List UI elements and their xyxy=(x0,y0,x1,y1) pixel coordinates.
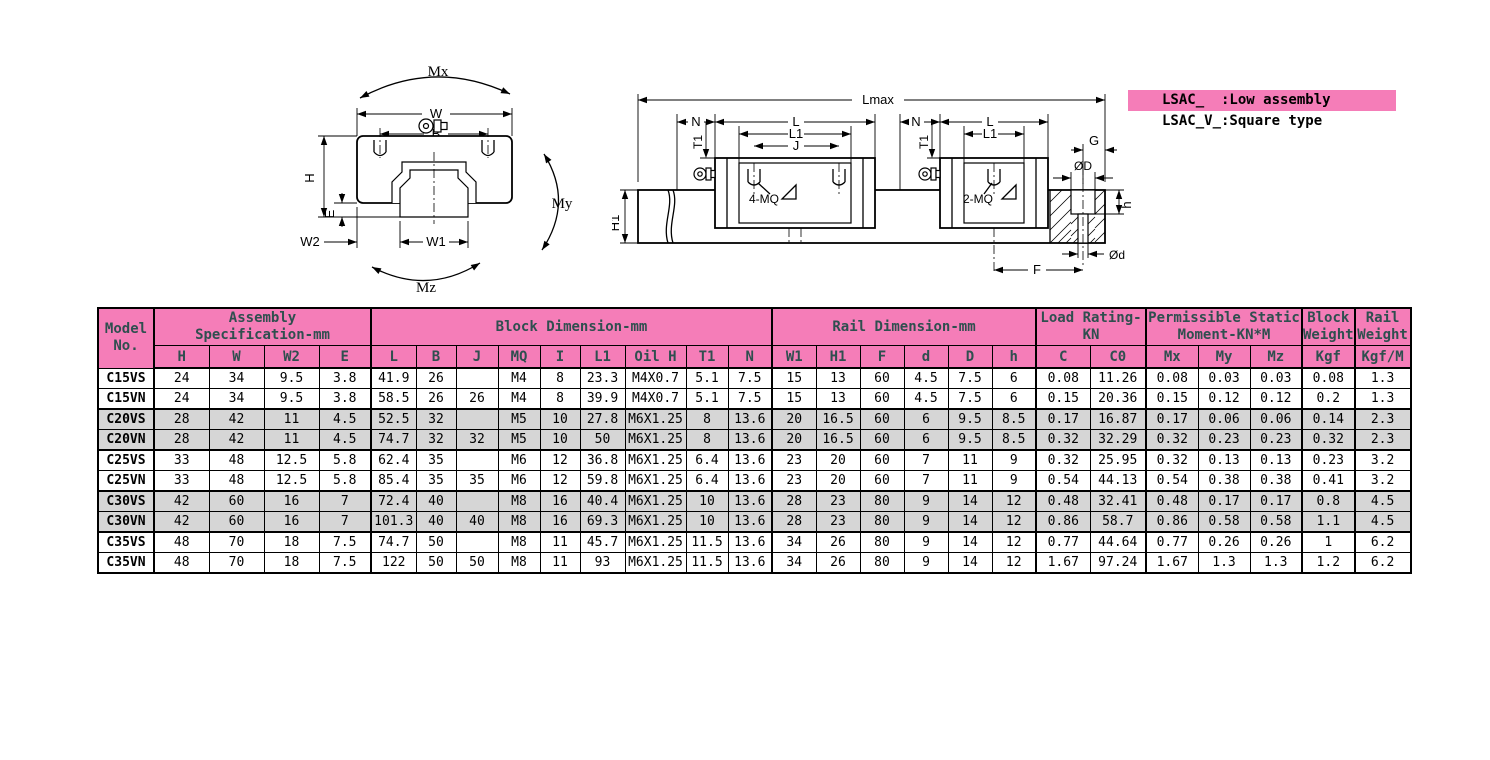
data-cell: 7.5 xyxy=(728,389,772,410)
data-cell: 52.5 xyxy=(371,409,416,430)
data-cell: 20.36 xyxy=(1090,389,1146,410)
col-header: D xyxy=(948,346,992,369)
data-cell: 8 xyxy=(540,368,580,389)
data-cell: 60 xyxy=(860,368,904,389)
data-cell: M4X0.7 xyxy=(625,368,686,389)
data-cell: 24 xyxy=(154,368,209,389)
data-cell: 12 xyxy=(992,553,1036,574)
data-cell: 10 xyxy=(540,409,580,430)
data-cell: 20 xyxy=(816,450,860,471)
data-cell: 9.5 xyxy=(264,389,319,410)
data-cell: 26 xyxy=(816,553,860,574)
spec-table: ModelNo. AssemblySpecification-mm Block … xyxy=(97,307,1412,574)
data-cell: 5.8 xyxy=(319,450,371,471)
model-cell: C15VN xyxy=(98,389,154,410)
data-cell: 13.6 xyxy=(728,471,772,492)
data-cell: M6X1.25 xyxy=(625,553,686,574)
data-cell: 6.4 xyxy=(686,471,728,492)
data-cell: 0.15 xyxy=(1036,389,1090,410)
mz-label: Mz xyxy=(416,280,436,296)
data-cell: 4.5 xyxy=(904,389,948,410)
data-cell: 0.12 xyxy=(1198,389,1250,410)
block-cross-section-drawing: Mx W B H E W2 W1 xyxy=(272,52,592,302)
data-cell: 0.58 xyxy=(1250,512,1302,533)
data-cell: 0.23 xyxy=(1250,430,1302,451)
data-cell: 2.3 xyxy=(1355,430,1411,451)
data-cell: 15 xyxy=(772,368,816,389)
data-cell: 0.48 xyxy=(1146,491,1198,512)
col-header: L xyxy=(371,346,416,369)
col-header: C0 xyxy=(1090,346,1146,369)
data-cell: 28 xyxy=(154,409,209,430)
data-cell: 20 xyxy=(772,409,816,430)
data-cell: 23 xyxy=(816,512,860,533)
data-cell: 9 xyxy=(992,471,1036,492)
data-cell: 28 xyxy=(154,430,209,451)
data-cell: 35 xyxy=(456,471,498,492)
my-label: My xyxy=(552,196,573,212)
data-cell: M6X1.25 xyxy=(625,430,686,451)
data-cell: 5.1 xyxy=(686,389,728,410)
data-cell: 60 xyxy=(860,471,904,492)
data-cell: 8.5 xyxy=(992,430,1036,451)
data-cell: 0.17 xyxy=(1250,491,1302,512)
data-cell: 5.8 xyxy=(319,471,371,492)
data-cell: 13.6 xyxy=(728,532,772,553)
mq4-label: 4-MQ xyxy=(749,192,779,206)
data-cell: 16 xyxy=(264,512,319,533)
data-cell: 6 xyxy=(904,409,948,430)
data-cell: 2.3 xyxy=(1355,409,1411,430)
data-cell: 1.2 xyxy=(1302,553,1355,574)
data-cell xyxy=(456,491,498,512)
data-cell: 15 xyxy=(772,389,816,410)
data-cell: 7 xyxy=(904,471,948,492)
data-cell: 0.06 xyxy=(1250,409,1302,430)
data-cell: 6 xyxy=(992,368,1036,389)
data-cell: 9 xyxy=(992,450,1036,471)
data-cell: 12 xyxy=(992,491,1036,512)
data-cell: 60 xyxy=(860,450,904,471)
data-cell: 74.7 xyxy=(371,532,416,553)
mx-label: Mx xyxy=(428,64,449,80)
data-cell: 0.32 xyxy=(1036,430,1090,451)
lmax-label: Lmax xyxy=(862,92,894,107)
data-cell: 60 xyxy=(860,409,904,430)
data-cell: 0.14 xyxy=(1302,409,1355,430)
data-cell: 10 xyxy=(540,430,580,451)
data-cell: 1.67 xyxy=(1146,553,1198,574)
data-cell: 11 xyxy=(264,430,319,451)
data-cell: 7 xyxy=(319,512,371,533)
data-cell: M6 xyxy=(498,450,540,471)
data-cell: M5 xyxy=(498,409,540,430)
group-static-moment: Permissible StaticMoment-KN*M xyxy=(1146,308,1302,346)
data-cell: 0.08 xyxy=(1036,368,1090,389)
data-cell: 1.3 xyxy=(1250,553,1302,574)
datasheet-page: Mx W B H E W2 W1 xyxy=(0,0,1490,760)
g-label: G xyxy=(1089,133,1099,148)
mq2-label: 2-MQ xyxy=(963,192,993,206)
data-cell: 40.4 xyxy=(580,491,625,512)
data-cell: M4 xyxy=(498,389,540,410)
data-cell: M6X1.25 xyxy=(625,471,686,492)
data-cell: 8 xyxy=(686,409,728,430)
data-cell: 0.03 xyxy=(1198,368,1250,389)
data-cell: 70 xyxy=(209,532,264,553)
data-cell: 7.5 xyxy=(948,389,992,410)
data-cell: 34 xyxy=(209,368,264,389)
data-cell: 59.8 xyxy=(580,471,625,492)
group-assembly: AssemblySpecification-mm xyxy=(154,308,371,346)
data-cell: 16.87 xyxy=(1090,409,1146,430)
data-cell: 1.1 xyxy=(1302,512,1355,533)
data-cell: 0.13 xyxy=(1250,450,1302,471)
data-cell: 72.4 xyxy=(371,491,416,512)
data-cell: 0.13 xyxy=(1198,450,1250,471)
data-cell: 122 xyxy=(371,553,416,574)
data-cell: 12 xyxy=(540,450,580,471)
data-cell: 6.2 xyxy=(1355,532,1411,553)
data-cell: 34 xyxy=(772,532,816,553)
col-header: C xyxy=(1036,346,1090,369)
model-cell: C35VS xyxy=(98,532,154,553)
data-cell: M6X1.25 xyxy=(625,532,686,553)
model-cell: C25VN xyxy=(98,471,154,492)
h-label: H xyxy=(302,173,317,182)
data-cell: 11.5 xyxy=(686,532,728,553)
dia-d-label: Ød xyxy=(1109,248,1125,262)
data-cell: M6X1.25 xyxy=(625,491,686,512)
data-cell: 7.5 xyxy=(948,368,992,389)
data-cell: 58.7 xyxy=(1090,512,1146,533)
data-cell: 35 xyxy=(416,450,456,471)
data-cell: 74.7 xyxy=(371,430,416,451)
data-cell: 33 xyxy=(154,450,209,471)
data-cell: 27.8 xyxy=(580,409,625,430)
table-row: C30VS426016772.440M81640.4M6X1.251013.62… xyxy=(98,491,1411,512)
col-header: Kgf xyxy=(1302,346,1355,369)
data-cell: 4.5 xyxy=(319,430,371,451)
model-cell: C25VS xyxy=(98,450,154,471)
f-label: F xyxy=(1033,262,1041,277)
data-cell: 41.9 xyxy=(371,368,416,389)
w2-label: W2 xyxy=(300,234,320,249)
sub-header-row: H W W2 E L B J MQ I L1 Oil H T1 N W1 H1 … xyxy=(98,346,1411,369)
data-cell: 12 xyxy=(992,512,1036,533)
data-cell: 4.5 xyxy=(1355,491,1411,512)
table-row: C20VN2842114.574.73232M51050M6X1.25813.6… xyxy=(98,430,1411,451)
data-cell: 13.6 xyxy=(728,491,772,512)
data-cell: 42 xyxy=(154,491,209,512)
data-cell: 80 xyxy=(860,491,904,512)
h-dim-label: h xyxy=(1119,201,1134,208)
data-cell: 23 xyxy=(816,491,860,512)
data-cell: 3.2 xyxy=(1355,471,1411,492)
data-cell: 40 xyxy=(416,491,456,512)
data-cell: 13.6 xyxy=(728,450,772,471)
table-row: C35VN4870187.51225050M81193M6X1.2511.513… xyxy=(98,553,1411,574)
data-cell: 1.3 xyxy=(1355,368,1411,389)
col-header: B xyxy=(416,346,456,369)
data-cell: 0.17 xyxy=(1198,491,1250,512)
data-cell: 33 xyxy=(154,471,209,492)
data-cell: 101.3 xyxy=(371,512,416,533)
data-cell: 34 xyxy=(772,553,816,574)
data-cell: 16 xyxy=(540,512,580,533)
data-cell: 0.38 xyxy=(1198,471,1250,492)
model-cell: C20VN xyxy=(98,430,154,451)
data-cell: 0.48 xyxy=(1036,491,1090,512)
data-cell: 9 xyxy=(904,491,948,512)
col-header: W xyxy=(209,346,264,369)
data-cell: 40 xyxy=(456,512,498,533)
data-cell: 34 xyxy=(209,389,264,410)
table-row: C20VS2842114.552.532M51027.8M6X1.25813.6… xyxy=(98,409,1411,430)
t1-left-label: T1 xyxy=(691,135,705,149)
table-row: C25VS334812.55.862.435M61236.8M6X1.256.4… xyxy=(98,450,1411,471)
col-header: Kgf/M xyxy=(1355,346,1411,369)
data-cell: M6X1.25 xyxy=(625,450,686,471)
data-cell: 16.5 xyxy=(816,430,860,451)
data-cell: 69.3 xyxy=(580,512,625,533)
data-cell: 0.77 xyxy=(1146,532,1198,553)
data-cell: 26 xyxy=(456,389,498,410)
data-cell: 42 xyxy=(209,430,264,451)
data-cell: 0.8 xyxy=(1302,491,1355,512)
col-header: My xyxy=(1198,346,1250,369)
h1-label: H1 xyxy=(612,215,622,232)
data-cell: 48 xyxy=(154,553,209,574)
data-cell: 0.77 xyxy=(1036,532,1090,553)
data-cell: 0.32 xyxy=(1036,450,1090,471)
data-cell: 23.3 xyxy=(580,368,625,389)
model-cell: C30VS xyxy=(98,491,154,512)
data-cell: 12 xyxy=(540,471,580,492)
data-cell: 32 xyxy=(416,409,456,430)
data-cell: 62.4 xyxy=(371,450,416,471)
data-cell: 13 xyxy=(816,389,860,410)
data-cell: 28 xyxy=(772,491,816,512)
col-header: I xyxy=(540,346,580,369)
data-cell: 14 xyxy=(948,553,992,574)
data-cell: 9 xyxy=(904,512,948,533)
data-cell: 0.54 xyxy=(1036,471,1090,492)
col-header: J xyxy=(456,346,498,369)
data-cell: 45.7 xyxy=(580,532,625,553)
data-cell: 9 xyxy=(904,532,948,553)
data-cell: 0.26 xyxy=(1198,532,1250,553)
col-header: Mx xyxy=(1146,346,1198,369)
data-cell: 58.5 xyxy=(371,389,416,410)
col-header: T1 xyxy=(686,346,728,369)
data-cell: 14 xyxy=(948,512,992,533)
col-header: MQ xyxy=(498,346,540,369)
data-cell: 8 xyxy=(686,430,728,451)
data-cell: 50 xyxy=(416,553,456,574)
data-cell: 44.64 xyxy=(1090,532,1146,553)
j-label: J xyxy=(793,138,800,153)
data-cell: 0.03 xyxy=(1250,368,1302,389)
data-cell: 5.1 xyxy=(686,368,728,389)
data-cell: 0.58 xyxy=(1198,512,1250,533)
data-cell: 11 xyxy=(948,450,992,471)
data-cell: 24 xyxy=(154,389,209,410)
data-cell: 11.5 xyxy=(686,553,728,574)
table-row: C30VN4260167101.34040M81669.3M6X1.251013… xyxy=(98,512,1411,533)
data-cell: 12.5 xyxy=(264,471,319,492)
group-block-dimension: Block Dimension-mm xyxy=(371,308,772,346)
data-cell: 48 xyxy=(209,471,264,492)
data-cell: 0.32 xyxy=(1302,430,1355,451)
data-cell: 0.17 xyxy=(1146,409,1198,430)
data-cell: 42 xyxy=(154,512,209,533)
table-row: C35VS4870187.574.750M81145.7M6X1.2511.51… xyxy=(98,532,1411,553)
col-header: E xyxy=(319,346,371,369)
data-cell: 50 xyxy=(580,430,625,451)
data-cell: 0.12 xyxy=(1250,389,1302,410)
data-cell: 12.5 xyxy=(264,450,319,471)
data-cell: 13 xyxy=(816,368,860,389)
data-cell: 13.6 xyxy=(728,409,772,430)
data-cell: 0.32 xyxy=(1146,450,1198,471)
data-cell: 0.41 xyxy=(1302,471,1355,492)
data-cell: 16.5 xyxy=(816,409,860,430)
data-cell: 10 xyxy=(686,512,728,533)
col-header: H xyxy=(154,346,209,369)
col-header: N xyxy=(728,346,772,369)
data-cell: 42 xyxy=(209,409,264,430)
data-cell: 70 xyxy=(209,553,264,574)
data-cell: 40 xyxy=(416,512,456,533)
data-cell: 10 xyxy=(686,491,728,512)
data-cell: 9.5 xyxy=(948,409,992,430)
data-cell: 0.23 xyxy=(1198,430,1250,451)
data-cell: 12 xyxy=(992,532,1036,553)
data-cell: 0.26 xyxy=(1250,532,1302,553)
col-header: d xyxy=(904,346,948,369)
rail-side-view-drawing: H1 Lmax 4-MQ N T1 L L1 xyxy=(612,66,1157,301)
col-header: Oil H xyxy=(625,346,686,369)
data-cell: 18 xyxy=(264,553,319,574)
data-cell: 14 xyxy=(948,532,992,553)
data-cell: 60 xyxy=(209,512,264,533)
group-block-weight: BlockWeight xyxy=(1302,308,1355,346)
data-cell: 4.5 xyxy=(319,409,371,430)
data-cell: 8 xyxy=(540,389,580,410)
data-cell: M8 xyxy=(498,553,540,574)
data-cell: 7 xyxy=(904,450,948,471)
data-cell: 32 xyxy=(456,430,498,451)
data-cell: 35 xyxy=(416,471,456,492)
data-cell: 4.5 xyxy=(1355,512,1411,533)
model-cell: C35VN xyxy=(98,553,154,574)
data-cell: 0.15 xyxy=(1146,389,1198,410)
data-cell: M6 xyxy=(498,471,540,492)
data-cell: 9.5 xyxy=(948,430,992,451)
table-row: C25VN334812.55.885.43535M61259.8M6X1.256… xyxy=(98,471,1411,492)
data-cell: 9.5 xyxy=(264,368,319,389)
data-cell: 16 xyxy=(540,491,580,512)
data-cell: 0.32 xyxy=(1146,430,1198,451)
data-cell: M4 xyxy=(498,368,540,389)
data-cell: 13.6 xyxy=(728,430,772,451)
data-cell: 11 xyxy=(264,409,319,430)
data-cell: 7.5 xyxy=(319,553,371,574)
data-cell: M6X1.25 xyxy=(625,512,686,533)
data-cell: 0.08 xyxy=(1302,368,1355,389)
data-cell: 14 xyxy=(948,491,992,512)
data-cell: 7.5 xyxy=(728,368,772,389)
data-cell xyxy=(456,532,498,553)
data-cell: 8.5 xyxy=(992,409,1036,430)
data-cell: 80 xyxy=(860,512,904,533)
data-cell: 1.3 xyxy=(1198,553,1250,574)
col-header: H1 xyxy=(816,346,860,369)
data-cell: 28 xyxy=(772,512,816,533)
data-cell: M8 xyxy=(498,532,540,553)
data-cell: 80 xyxy=(860,532,904,553)
data-cell xyxy=(456,450,498,471)
e-label: E xyxy=(322,209,337,218)
n-right-label: N xyxy=(911,114,920,129)
data-cell: 60 xyxy=(860,389,904,410)
legend-low-assembly: LSAC_ :Low assembly xyxy=(1128,90,1396,111)
data-cell: 50 xyxy=(456,553,498,574)
col-header: h xyxy=(992,346,1036,369)
col-header: W2 xyxy=(264,346,319,369)
data-cell: 93 xyxy=(580,553,625,574)
data-cell: 7 xyxy=(319,491,371,512)
data-cell: 6.2 xyxy=(1355,553,1411,574)
data-cell: 6 xyxy=(904,430,948,451)
w1-label: W1 xyxy=(426,234,446,249)
col-header: Mz xyxy=(1250,346,1302,369)
col-header: W1 xyxy=(772,346,816,369)
data-cell xyxy=(456,368,498,389)
data-cell: 11.26 xyxy=(1090,368,1146,389)
table-row: C15VS24349.53.841.926M4823.3M4X0.75.17.5… xyxy=(98,368,1411,389)
data-cell: 6.4 xyxy=(686,450,728,471)
col-header: L1 xyxy=(580,346,625,369)
data-cell: 1 xyxy=(1302,532,1355,553)
data-cell: 6 xyxy=(992,389,1036,410)
w-label: W xyxy=(430,106,443,121)
data-cell: 13.6 xyxy=(728,553,772,574)
n-left-label: N xyxy=(691,114,700,129)
data-cell: 1.67 xyxy=(1036,553,1090,574)
data-cell: 7.5 xyxy=(319,532,371,553)
data-cell: 44.13 xyxy=(1090,471,1146,492)
model-cell: C20VS xyxy=(98,409,154,430)
data-cell: 3.2 xyxy=(1355,450,1411,471)
model-cell: C30VN xyxy=(98,512,154,533)
data-cell: M5 xyxy=(498,430,540,451)
data-cell: 48 xyxy=(154,532,209,553)
data-cell: 32.41 xyxy=(1090,491,1146,512)
model-header: ModelNo. xyxy=(98,308,154,368)
data-cell: 80 xyxy=(860,553,904,574)
data-cell xyxy=(456,409,498,430)
data-cell: 0.86 xyxy=(1036,512,1090,533)
data-cell: M8 xyxy=(498,512,540,533)
data-cell: 1.3 xyxy=(1355,389,1411,410)
data-cell: 0.08 xyxy=(1146,368,1198,389)
data-cell: 4.5 xyxy=(904,368,948,389)
data-cell: 50 xyxy=(416,532,456,553)
data-cell: 48 xyxy=(209,450,264,471)
legend: LSAC_ :Low assembly LSAC_V_:Square type xyxy=(1128,90,1396,132)
